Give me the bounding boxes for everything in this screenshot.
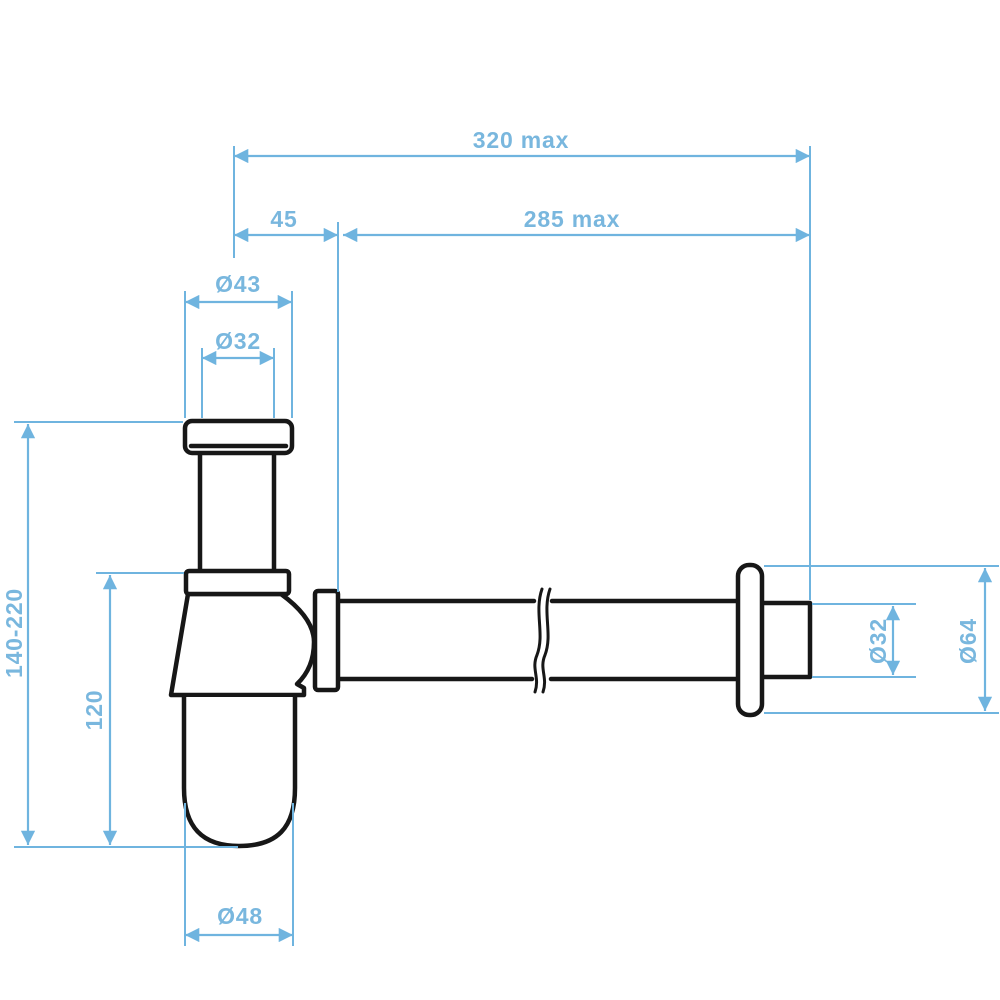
outlet-pipe <box>338 589 737 692</box>
dim-label-cup-diameter: Ø48 <box>217 903 263 929</box>
dim-body-height: 120 <box>81 573 184 845</box>
body-collar-nut <box>186 571 289 594</box>
wall-flange <box>738 565 762 715</box>
dim-label-inlet-pipe-diameter: Ø32 <box>215 328 261 354</box>
inlet-pipe <box>200 452 274 573</box>
dim-label-body-height: 120 <box>81 690 107 731</box>
dim-label-flange-diameter: Ø64 <box>955 618 981 664</box>
drawing-canvas: 320 max 45 285 max Ø43 Ø32 <box>0 0 1000 1000</box>
trap-body <box>171 594 314 695</box>
dim-label-overall-width: 320 max <box>473 127 569 153</box>
outlet-nut <box>315 591 338 690</box>
pipe-stub <box>761 603 810 677</box>
trap-outline <box>171 421 810 846</box>
inlet-nut <box>185 421 292 453</box>
trap-cup <box>184 697 295 846</box>
dimension-annotations: 320 max 45 285 max Ø43 Ø32 <box>1 127 999 946</box>
dim-overall-width: 320 max <box>234 127 810 600</box>
dim-outlet-pipe-diameter: Ø32 <box>812 604 916 677</box>
bottle-trap-technical-drawing: 320 max 45 285 max Ø43 Ø32 <box>0 0 1000 1000</box>
dim-label-inlet-offset: 45 <box>270 206 297 232</box>
dim-label-outlet-pipe-diameter: Ø32 <box>865 618 891 664</box>
dim-inlet-pipe-diameter: Ø32 <box>202 328 274 418</box>
dim-label-inlet-nut-diameter: Ø43 <box>215 271 261 297</box>
dim-label-horizontal-reach: 285 max <box>524 206 620 232</box>
dim-horizontal-reach: 285 max <box>343 206 810 235</box>
dim-label-height-range: 140-220 <box>1 588 27 678</box>
